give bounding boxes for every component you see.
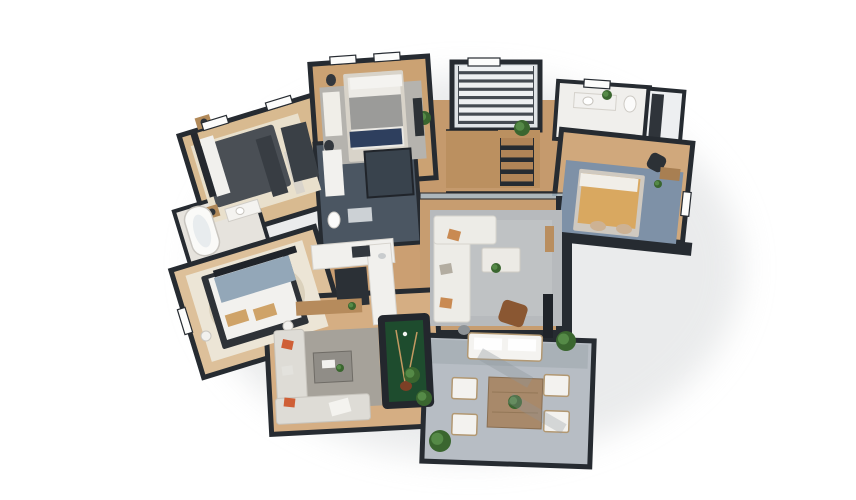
living-wall-art [545, 226, 554, 252]
bedroom-2-lamp-1 [201, 331, 211, 341]
game-console-plant [348, 302, 356, 310]
patio-chair-2 [544, 375, 570, 397]
living-coffee-table [482, 248, 520, 272]
game-table-books [322, 360, 335, 369]
patio-sofa-cushion-1 [474, 338, 502, 351]
right-bath-plant [602, 90, 612, 100]
pool-cue-ball [403, 332, 407, 336]
window-stairwell [468, 58, 500, 66]
master-sink [236, 208, 244, 215]
bedroom-top-lamp-1 [326, 74, 336, 86]
patio-bush-1 [556, 331, 576, 351]
game-pillow-3 [284, 397, 296, 407]
kitchen-stove [352, 245, 371, 258]
living-table-plant [491, 263, 501, 273]
window-bedroom-top-1 [330, 55, 356, 65]
living-glass-wall [420, 193, 572, 199]
living-sofa-arm [434, 216, 496, 244]
walkway-bush [404, 367, 420, 383]
stairs-lower [500, 138, 534, 186]
living-pillow-3 [439, 297, 452, 309]
patio-sofa-cushion-2 [508, 339, 536, 352]
game-corner-plant [416, 390, 432, 406]
window-right-bath [584, 79, 610, 89]
game-pillow-2 [281, 365, 293, 375]
stairs-upper [458, 66, 534, 124]
patio-chair-3 [452, 414, 478, 436]
living-pillow-2 [439, 263, 453, 275]
patio-bush-2 [429, 430, 451, 452]
kitchen-sink [378, 253, 386, 259]
window-bedroom-right [681, 192, 691, 217]
living-tv-console [543, 294, 553, 338]
right-bath-sink [583, 97, 593, 105]
window-bedroom-top-2 [374, 52, 400, 62]
floor-plan-render [0, 0, 856, 500]
floor-plan-canvas [0, 0, 856, 500]
bedroom-right-plant [654, 180, 662, 188]
patio-chair-1 [452, 378, 478, 400]
floor-plan-layers [171, 52, 742, 467]
center-bath-vanity [322, 149, 344, 196]
center-bath-toilet [328, 212, 340, 228]
bedroom-top-blanket [349, 94, 403, 130]
landing-plant [514, 120, 530, 136]
bedroom-top-bench [322, 91, 342, 136]
game-table-plant [336, 364, 344, 372]
center-bath-shower [364, 148, 413, 197]
bedroom-right-desk [659, 167, 680, 181]
center-bath-mat [348, 207, 373, 223]
